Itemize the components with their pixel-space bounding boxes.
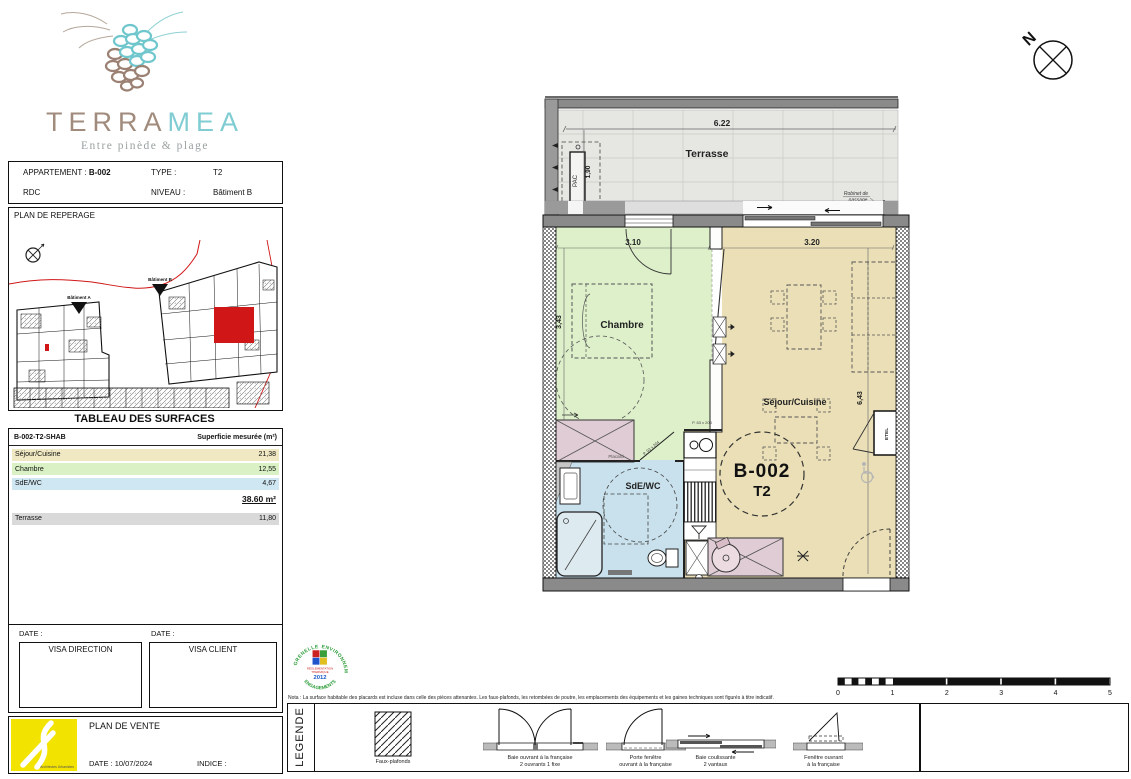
- fridge: [684, 482, 716, 522]
- baie-coulissante-symbol-icon: [666, 732, 776, 754]
- location-map-panel: PLAN DE REPERAGE: [8, 207, 283, 411]
- surface-table-title: TABLEAU DES SURFACES: [8, 413, 281, 425]
- visa-client-title: VISA CLIENT: [189, 645, 237, 654]
- apartment-info-table: APPARTEMENT : B-002 TYPE : T2 RDC NIVEAU…: [8, 161, 283, 204]
- pinecone-logo-icon: [55, 2, 205, 106]
- row-value: 11,80: [259, 515, 276, 522]
- title-block-title: PLAN DE VENTE: [89, 721, 160, 731]
- closet-bottom: [708, 537, 783, 576]
- closet-label: Placard: [608, 454, 624, 459]
- apartment-value: B-002: [89, 168, 111, 177]
- living-height-dim: 6,43: [857, 391, 864, 405]
- legend-item-label: Faux-plafonds: [351, 759, 435, 766]
- apartment-label: APPARTEMENT :: [23, 168, 87, 177]
- unit-number: B-002: [734, 461, 791, 482]
- level-label: NIVEAU :: [151, 188, 213, 197]
- surface-col-value: Superficie mesurée (m²): [197, 434, 277, 441]
- stamp-line2: THERMIQUE: [311, 670, 328, 674]
- revision-box: [920, 703, 1129, 772]
- visa-direction-title: VISA DIRECTION: [48, 645, 112, 654]
- unit-highlight: [214, 307, 254, 343]
- title-block: Architectes Urbanistes PLAN DE VENTE DAT…: [8, 716, 283, 774]
- surface-table-header: B-002-T2-SHAB Superficie mesurée (m²): [9, 429, 282, 446]
- table-row: Terrasse 11,80: [12, 513, 279, 525]
- compass-icon: [26, 244, 44, 262]
- rt2012-stamp: GRENELLE ENVIRONNEMENT ENGAGEMENTS RÉGLE…: [289, 630, 351, 694]
- scale-tick: 1: [890, 690, 894, 697]
- legend-item-label: Baie ouvrant à la française2 ouvrants 1 …: [485, 755, 595, 769]
- title-block-indice: INDICE :: [197, 759, 227, 768]
- visa-client-box[interactable]: VISA CLIENT: [149, 642, 277, 708]
- svg-text:Bâtiment A: Bâtiment A: [67, 295, 91, 300]
- row-value: 21,38: [258, 451, 276, 458]
- scale-tick: 5: [1108, 690, 1112, 697]
- baie-ouvrant-symbol-icon: [483, 707, 598, 753]
- scale-tick: 4: [1054, 690, 1058, 697]
- table-row: SdE/WC 4,67: [12, 478, 279, 490]
- nota-text: Nota : La surface habitable des placards…: [288, 695, 806, 701]
- table-row: Séjour/Cuisine 21,38: [12, 449, 279, 461]
- scale-tick: 3: [999, 690, 1003, 697]
- type-value: T2: [213, 168, 282, 177]
- living-width-dim: 3.20: [804, 238, 820, 247]
- type-label: TYPE :: [151, 168, 213, 177]
- bedroom-window: [625, 215, 673, 227]
- svg-text:Robinet de: Robinet de: [844, 191, 868, 197]
- stamp-year: 2012: [313, 675, 327, 681]
- visa-direction-box[interactable]: VISA DIRECTION: [19, 642, 142, 708]
- legend-title-cell: LEGENDE: [288, 704, 315, 771]
- toilet: [666, 549, 678, 567]
- surface-col-name: B-002-T2-SHAB: [14, 434, 66, 441]
- visa-panel: DATE : DATE : VISA DIRECTION VISA CLIENT: [8, 624, 283, 713]
- closet-top: Placard: [556, 420, 634, 462]
- floor-plan: 6.22 Terrasse PAC 1,90 Robinet de passag…: [528, 88, 918, 600]
- terrace-label: Terrasse: [685, 148, 728, 160]
- scale-tick: 2: [945, 690, 949, 697]
- terrace-width-dim: 6.22: [714, 118, 731, 128]
- architect-logo-icon: Architectes Urbanistes: [11, 719, 77, 771]
- site-map: Bâtiment A Bâtiment B: [9, 222, 280, 408]
- faux-plafonds-symbol-icon: [374, 711, 412, 757]
- legend-title: LEGENDE: [294, 704, 306, 770]
- terrace-edge-strip: [545, 201, 898, 214]
- fenetre-ouvrant-symbol-icon: [793, 707, 863, 753]
- washing-machine: [712, 544, 740, 572]
- building-a-footprint: [17, 302, 109, 400]
- living-label: Séjour/Cuisine: [763, 397, 826, 407]
- row-label: Chambre: [15, 466, 44, 473]
- title-block-date: DATE : 10/07/2024: [89, 759, 152, 768]
- architect-logo-caption: Architectes Urbanistes: [40, 765, 74, 769]
- brand-terra: TERRA: [46, 107, 168, 137]
- north-label: N: [1020, 29, 1040, 49]
- visa-date-label: DATE :: [151, 629, 175, 638]
- north-indicator: N: [1005, 20, 1100, 95]
- info-row-level: RDC NIVEAU : Bâtiment B: [9, 182, 282, 202]
- scale-bar: 0 1 2 3 4 5: [830, 666, 1122, 698]
- stamp-center-logo: [313, 650, 327, 664]
- visa-date-label: DATE :: [19, 629, 43, 638]
- bedroom-height-dim: 3,43: [556, 315, 563, 329]
- row-label: SdE/WC: [15, 480, 42, 487]
- row-value: 4,67: [262, 480, 276, 487]
- unit-type: T2: [753, 483, 771, 500]
- svg-text:Bâtiment B: Bâtiment B: [148, 277, 173, 282]
- legend-panel: LEGENDE Faux-plafonds Baie ouvrant à la …: [287, 703, 920, 772]
- surface-table: B-002-T2-SHAB Superficie mesurée (m²) Sé…: [8, 428, 283, 626]
- info-row-apartment: APPARTEMENT : B-002 TYPE : T2: [9, 162, 282, 182]
- etel-label: ETEL: [884, 428, 890, 440]
- surface-total: 38.60 m²: [9, 494, 276, 504]
- table-row: Chambre 12,55: [12, 463, 279, 475]
- brand-tagline: Entre pinède & plage: [0, 140, 290, 152]
- terrace-area: 6.22 Terrasse PAC 1,90 Robinet de passag…: [545, 97, 898, 218]
- entrance-opening: [843, 578, 890, 591]
- row-label: Séjour/Cuisine: [15, 451, 61, 458]
- kitchen-door-dim: P. 83 x 204: [692, 420, 712, 425]
- pac-dim: 1,90: [585, 165, 592, 178]
- scale-tick: 0: [836, 690, 840, 697]
- level-value: Bâtiment B: [213, 188, 282, 197]
- legend-item-label: Fenêtre ouvrantà la française: [776, 755, 871, 769]
- row-label: Terrasse: [15, 515, 42, 522]
- brand-logo: TERRAMEA Entre pinède & plage: [0, 0, 290, 160]
- bedroom-label: Chambre: [600, 320, 644, 331]
- row-value: 12,55: [258, 466, 276, 473]
- location-map-title: PLAN DE REPERAGE: [14, 211, 95, 220]
- floor-value: RDC: [9, 188, 151, 197]
- brand-name: TERRAMEA: [0, 107, 290, 138]
- bathroom-label: SdE/WC: [626, 481, 661, 491]
- pac-label: PAC: [573, 174, 579, 187]
- legend-item-label: Baie coulissante2 vantaux: [668, 755, 763, 769]
- plan-de-vente-sheet: TERRAMEA Entre pinède & plage APPARTEMEN…: [0, 0, 1131, 779]
- brand-mea: MEA: [168, 107, 245, 137]
